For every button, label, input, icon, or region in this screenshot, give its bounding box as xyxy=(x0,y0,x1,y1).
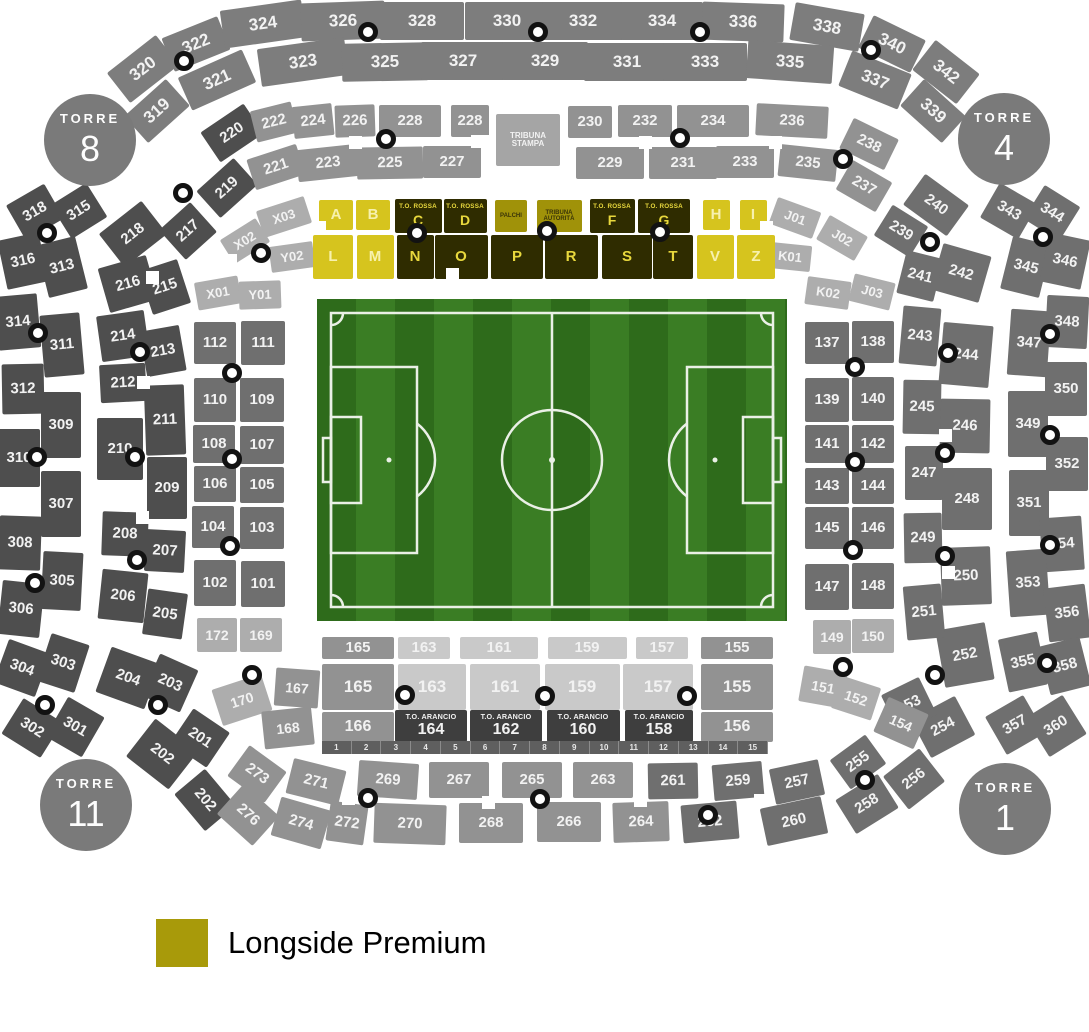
section-224[interactable]: 224 xyxy=(291,103,334,139)
section-245[interactable]: 245 xyxy=(903,380,942,435)
stadium-seating-map: 123456789101112131415 Longside Premium 3… xyxy=(0,0,1089,1032)
section-315[interactable]: 315 xyxy=(51,183,108,239)
stair-marker-icon xyxy=(482,796,495,809)
stair-marker-icon xyxy=(639,136,652,149)
section-106[interactable]: 106 xyxy=(194,466,236,502)
section-x01[interactable]: X01 xyxy=(194,275,242,310)
section-148[interactable]: 148 xyxy=(852,563,894,609)
section-323[interactable]: 323 xyxy=(257,37,349,87)
gate-marker-icon xyxy=(861,40,881,60)
section-163[interactable]: 163 xyxy=(398,637,450,659)
section-225[interactable]: 225 xyxy=(357,146,424,179)
section-159[interactable]: 159 xyxy=(548,637,627,659)
gate-marker-icon xyxy=(242,665,262,685)
section-266[interactable]: 266 xyxy=(537,802,601,842)
stair-marker-icon xyxy=(137,376,150,389)
stair-marker-icon xyxy=(942,566,955,579)
section-101[interactable]: 101 xyxy=(241,561,285,607)
section-155[interactable]: 155 xyxy=(701,637,773,659)
row-number-1: 1 xyxy=(322,741,352,754)
section-169[interactable]: 169 xyxy=(240,618,282,652)
section-331[interactable]: 331 xyxy=(584,43,670,81)
section-243[interactable]: 243 xyxy=(899,305,942,366)
section-166[interactable]: 166 xyxy=(322,712,394,742)
section-161[interactable]: 161 xyxy=(470,664,540,710)
stair-marker-icon xyxy=(939,429,952,442)
section-144[interactable]: 144 xyxy=(852,468,894,504)
stair-marker-icon xyxy=(342,792,355,805)
section-307[interactable]: 307 xyxy=(41,471,81,537)
section-m[interactable]: M xyxy=(357,235,394,279)
section-h[interactable]: H xyxy=(703,200,730,230)
section-161[interactable]: 161 xyxy=(460,637,538,659)
section-110[interactable]: 110 xyxy=(194,378,236,422)
section-353[interactable]: 353 xyxy=(1006,549,1051,618)
section-332[interactable]: 332 xyxy=(542,2,624,40)
section-145[interactable]: 145 xyxy=(805,507,849,549)
gate-marker-icon xyxy=(670,128,690,148)
gate-marker-icon xyxy=(855,770,875,790)
section-y01[interactable]: Y01 xyxy=(239,280,282,309)
tower-11: TORRE11 xyxy=(40,759,132,851)
gate-marker-icon xyxy=(37,223,57,243)
section-251[interactable]: 251 xyxy=(903,583,946,640)
row-number-13: 13 xyxy=(679,741,709,754)
gate-marker-icon xyxy=(28,323,48,343)
section-140[interactable]: 140 xyxy=(852,377,894,421)
row-number-14: 14 xyxy=(709,741,739,754)
section-268[interactable]: 268 xyxy=(459,803,523,843)
row-number-12: 12 xyxy=(649,741,679,754)
section-230[interactable]: 230 xyxy=(568,106,612,138)
gate-marker-icon xyxy=(222,449,242,469)
section-271[interactable]: 271 xyxy=(285,758,346,806)
section-141[interactable]: 141 xyxy=(805,425,849,463)
row-number-strip: 123456789101112131415 xyxy=(322,741,768,754)
gate-marker-icon xyxy=(650,222,670,242)
pitch-markings xyxy=(317,299,787,621)
row-number-7: 7 xyxy=(500,741,530,754)
gate-marker-icon xyxy=(130,342,150,362)
section-r[interactable]: R xyxy=(545,235,598,279)
section-350[interactable]: 350 xyxy=(1045,362,1087,416)
section-149[interactable]: 149 xyxy=(813,620,851,654)
section-156[interactable]: 156 xyxy=(701,712,773,742)
gate-marker-icon xyxy=(251,243,271,263)
section-168[interactable]: 168 xyxy=(261,706,315,749)
section-333[interactable]: 333 xyxy=(663,43,747,81)
gate-marker-icon xyxy=(528,22,548,42)
section-209[interactable]: 209 xyxy=(147,457,187,519)
section-263[interactable]: 263 xyxy=(573,762,633,798)
section-l[interactable]: L xyxy=(313,235,353,279)
stair-marker-icon xyxy=(136,511,149,524)
section-157[interactable]: 157 xyxy=(636,637,688,659)
section-160[interactable]: T.O. ARANCIO160 xyxy=(547,710,620,742)
gate-marker-icon xyxy=(845,452,865,472)
section-236[interactable]: 236 xyxy=(755,103,829,139)
section-109[interactable]: 109 xyxy=(240,378,284,422)
section-327[interactable]: 327 xyxy=(421,42,505,80)
section-165[interactable]: 165 xyxy=(322,637,394,659)
row-number-4: 4 xyxy=(411,741,441,754)
tower-8: TORRE8 xyxy=(44,94,136,186)
gate-marker-icon xyxy=(148,695,168,715)
section-261[interactable]: 261 xyxy=(648,763,699,800)
section-107[interactable]: 107 xyxy=(240,426,284,464)
row-number-9: 9 xyxy=(560,741,590,754)
section-232[interactable]: 232 xyxy=(618,105,672,137)
gate-marker-icon xyxy=(358,22,378,42)
gate-marker-icon xyxy=(125,447,145,467)
gate-marker-icon xyxy=(376,129,396,149)
gate-marker-icon xyxy=(530,789,550,809)
section-267[interactable]: 267 xyxy=(429,762,489,798)
section-s[interactable]: S xyxy=(602,235,652,279)
section-335[interactable]: 335 xyxy=(746,40,834,84)
section-d[interactable]: T.O. ROSSAD xyxy=(444,199,487,233)
section-260[interactable]: 260 xyxy=(760,796,829,846)
gate-marker-icon xyxy=(395,685,415,705)
section-164[interactable]: T.O. ARANCIO164 xyxy=(395,710,467,742)
section-325[interactable]: 325 xyxy=(342,42,429,81)
gate-marker-icon xyxy=(537,221,557,241)
legend-swatch-longside-premium xyxy=(156,919,208,967)
section-313[interactable]: 313 xyxy=(36,236,88,298)
section-264[interactable]: 264 xyxy=(612,801,669,843)
section-226[interactable]: 226 xyxy=(334,104,375,137)
legend-label: Longside Premium xyxy=(228,925,486,961)
section-b[interactable]: B xyxy=(356,200,390,230)
section-305[interactable]: 305 xyxy=(41,551,84,611)
section-159[interactable]: 159 xyxy=(545,664,620,710)
tower-1: TORRE1 xyxy=(959,763,1051,855)
section-241[interactable]: 241 xyxy=(896,250,944,302)
section-352[interactable]: 352 xyxy=(1046,437,1088,491)
section-147[interactable]: 147 xyxy=(805,564,849,610)
section-272[interactable]: 272 xyxy=(325,801,368,846)
section-309[interactable]: 309 xyxy=(41,392,81,458)
stair-marker-icon xyxy=(446,268,459,281)
section-211[interactable]: 211 xyxy=(144,384,186,455)
section-248[interactable]: 248 xyxy=(942,468,992,530)
stair-marker-icon xyxy=(146,271,159,284)
section-palchi[interactable]: PALCHI xyxy=(495,200,527,232)
section-223[interactable]: 223 xyxy=(295,144,360,182)
section-227[interactable]: 227 xyxy=(423,146,481,178)
row-number-11: 11 xyxy=(619,741,649,754)
gate-marker-icon xyxy=(222,363,242,383)
row-number-8: 8 xyxy=(530,741,560,754)
gate-marker-icon xyxy=(920,232,940,252)
stair-marker-icon xyxy=(313,221,326,234)
section-v[interactable]: V xyxy=(697,235,734,279)
gate-marker-icon xyxy=(1040,425,1060,445)
gate-marker-icon xyxy=(833,149,853,169)
section-162[interactable]: T.O. ARANCIO162 xyxy=(470,710,542,742)
section-137[interactable]: 137 xyxy=(805,322,849,364)
gate-marker-icon xyxy=(938,343,958,363)
gate-marker-icon xyxy=(174,51,194,71)
stair-marker-icon xyxy=(769,136,782,149)
gate-marker-icon xyxy=(1040,535,1060,555)
section-218[interactable]: 218 xyxy=(99,201,167,267)
section-103[interactable]: 103 xyxy=(240,507,284,549)
gate-marker-icon xyxy=(27,447,47,467)
section-228[interactable]: 228 xyxy=(451,105,489,137)
section-tribuna-stampa[interactable]: TRIBUNASTAMPA xyxy=(496,114,560,166)
section-270[interactable]: 270 xyxy=(373,803,446,845)
section-y02[interactable]: Y02 xyxy=(268,241,315,273)
row-number-10: 10 xyxy=(590,741,620,754)
section-356[interactable]: 356 xyxy=(1043,584,1089,643)
stair-marker-icon xyxy=(634,794,647,807)
gate-marker-icon xyxy=(845,357,865,377)
section-308[interactable]: 308 xyxy=(0,515,42,570)
stair-marker-icon xyxy=(754,794,767,807)
section-f[interactable]: T.O. ROSSAF xyxy=(590,199,635,233)
section-312[interactable]: 312 xyxy=(2,364,45,415)
section-336[interactable]: 336 xyxy=(701,2,784,43)
gate-marker-icon xyxy=(833,657,853,677)
tower-4: TORRE4 xyxy=(958,93,1050,185)
gate-marker-icon xyxy=(690,22,710,42)
gate-marker-icon xyxy=(677,686,697,706)
section-102[interactable]: 102 xyxy=(194,560,236,606)
gate-marker-icon xyxy=(407,223,427,243)
football-pitch xyxy=(317,299,787,621)
section-p[interactable]: P xyxy=(491,235,543,279)
section-j02[interactable]: J02 xyxy=(816,215,868,261)
section-217[interactable]: 217 xyxy=(159,202,217,260)
gate-marker-icon xyxy=(358,788,378,808)
gate-marker-icon xyxy=(127,550,147,570)
gate-marker-icon xyxy=(1040,324,1060,344)
section-j03[interactable]: J03 xyxy=(848,273,896,310)
stair-marker-icon xyxy=(224,254,237,267)
section-111[interactable]: 111 xyxy=(241,321,285,365)
section-112[interactable]: 112 xyxy=(194,322,236,364)
stair-marker-icon xyxy=(349,136,362,149)
section-143[interactable]: 143 xyxy=(805,468,849,504)
section-158[interactable]: T.O. ARANCIO158 xyxy=(625,710,693,742)
stair-marker-icon xyxy=(760,221,773,234)
gate-marker-icon xyxy=(698,805,718,825)
section-328[interactable]: 328 xyxy=(380,2,464,40)
section-172[interactable]: 172 xyxy=(197,618,237,652)
gate-marker-icon xyxy=(25,573,45,593)
section-167[interactable]: 167 xyxy=(274,668,321,709)
section-155[interactable]: 155 xyxy=(701,664,773,710)
section-139[interactable]: 139 xyxy=(805,378,849,422)
section-k02[interactable]: K02 xyxy=(804,276,851,310)
gate-marker-icon xyxy=(935,443,955,463)
legend: Longside Premium xyxy=(156,919,486,967)
stair-marker-icon xyxy=(482,135,495,148)
section-274[interactable]: 274 xyxy=(270,797,331,850)
section-349[interactable]: 349 xyxy=(1008,391,1048,457)
section-303[interactable]: 303 xyxy=(36,633,89,693)
section-150[interactable]: 150 xyxy=(852,619,894,653)
gate-marker-icon xyxy=(935,546,955,566)
gate-marker-icon xyxy=(925,665,945,685)
section-j01[interactable]: J01 xyxy=(769,197,822,239)
gate-marker-icon xyxy=(1033,227,1053,247)
section-206[interactable]: 206 xyxy=(98,569,149,624)
section-z[interactable]: Z xyxy=(737,235,775,279)
gate-marker-icon xyxy=(843,540,863,560)
section-205[interactable]: 205 xyxy=(142,588,188,639)
section-165[interactable]: 165 xyxy=(322,664,394,710)
section-235[interactable]: 235 xyxy=(777,144,838,182)
section-o[interactable]: O xyxy=(435,235,488,279)
gate-marker-icon xyxy=(35,695,55,715)
section-207[interactable]: 207 xyxy=(144,529,186,573)
gate-marker-icon xyxy=(173,183,193,203)
section-233[interactable]: 233 xyxy=(716,146,774,178)
row-number-3: 3 xyxy=(381,741,411,754)
section-152[interactable]: 152 xyxy=(831,675,881,720)
section-231[interactable]: 231 xyxy=(649,147,717,179)
section-105[interactable]: 105 xyxy=(240,467,284,503)
section-229[interactable]: 229 xyxy=(576,147,644,179)
section-324[interactable]: 324 xyxy=(220,0,306,49)
row-number-5: 5 xyxy=(441,741,471,754)
row-number-6: 6 xyxy=(471,741,501,754)
row-number-2: 2 xyxy=(352,741,382,754)
gate-marker-icon xyxy=(1037,653,1057,673)
section-329[interactable]: 329 xyxy=(502,42,588,80)
section-360[interactable]: 360 xyxy=(1025,695,1087,757)
section-311[interactable]: 311 xyxy=(39,312,84,377)
gate-marker-icon xyxy=(535,686,555,706)
row-number-15: 15 xyxy=(738,741,768,754)
gate-marker-icon xyxy=(220,536,240,556)
